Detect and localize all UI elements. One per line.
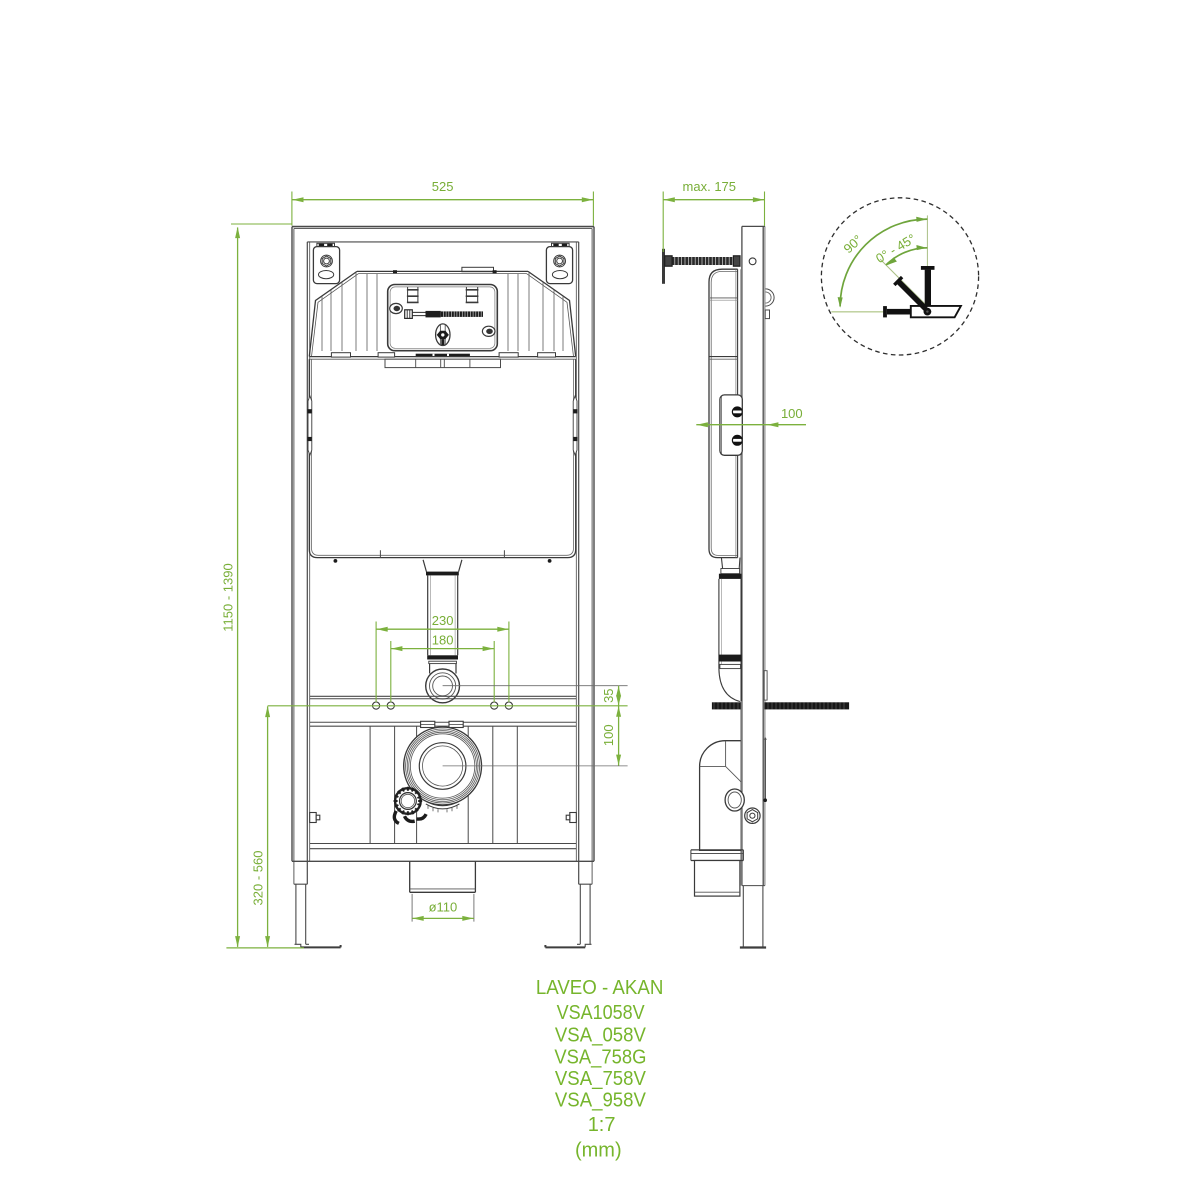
svg-text:VSA1058V: VSA1058V — [557, 1002, 646, 1024]
svg-text:ø110: ø110 — [429, 900, 458, 915]
svg-text:1:7: 1:7 — [588, 1114, 616, 1136]
svg-text:320 - 560: 320 - 560 — [251, 851, 266, 906]
svg-text:VSA_758V: VSA_758V — [555, 1068, 647, 1090]
svg-text:max. 175: max. 175 — [683, 179, 736, 194]
svg-text:(mm): (mm) — [575, 1139, 622, 1161]
svg-text:180: 180 — [432, 632, 454, 647]
svg-text:VSA_758G: VSA_758G — [554, 1046, 646, 1068]
svg-text:100: 100 — [601, 724, 616, 746]
svg-text:VSA_058V: VSA_058V — [555, 1025, 647, 1047]
svg-text:LAVEO - AKAN: LAVEO - AKAN — [536, 977, 664, 999]
svg-text:35: 35 — [601, 688, 616, 702]
svg-text:VSA_958V: VSA_958V — [555, 1090, 647, 1112]
svg-text:525: 525 — [432, 179, 454, 194]
svg-text:230: 230 — [432, 613, 454, 628]
svg-text:1150 - 1390: 1150 - 1390 — [221, 563, 236, 631]
svg-text:100: 100 — [781, 406, 803, 421]
